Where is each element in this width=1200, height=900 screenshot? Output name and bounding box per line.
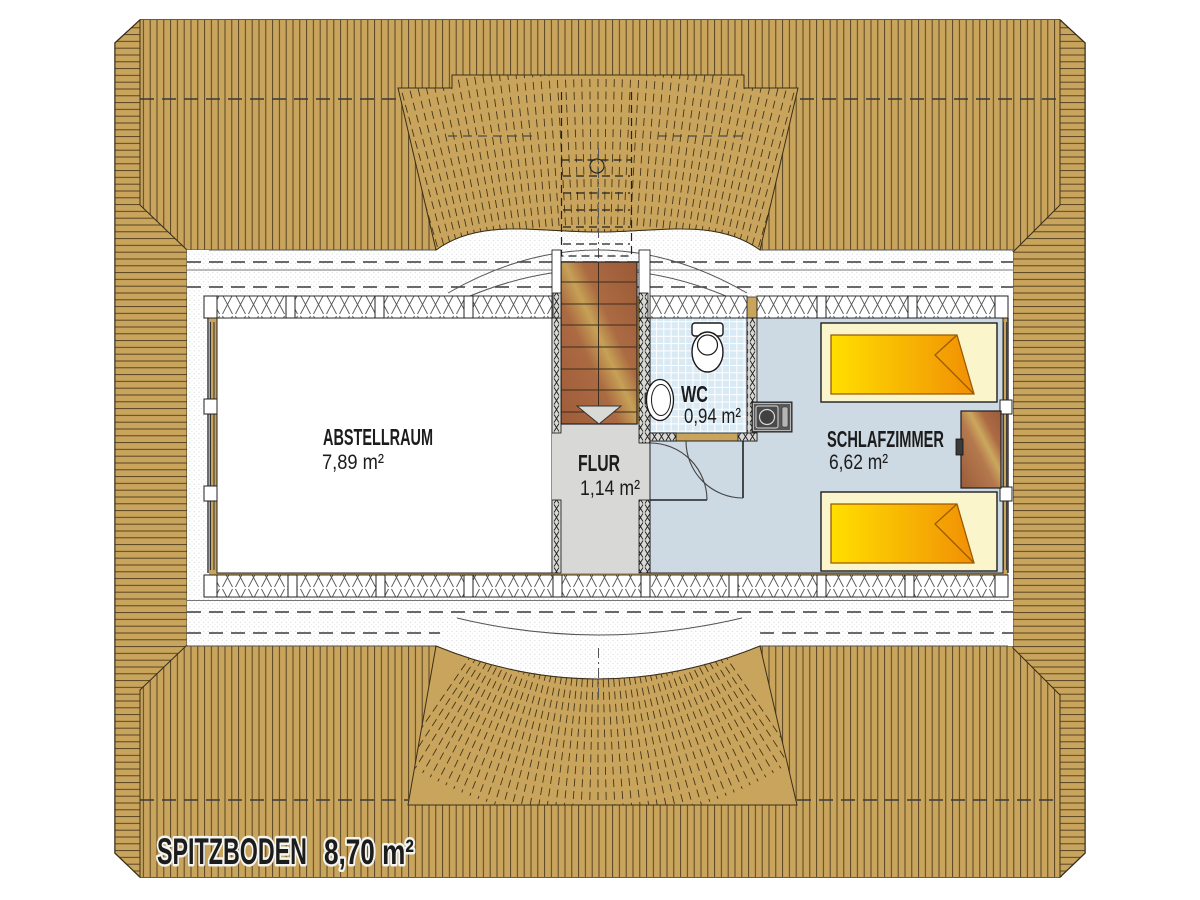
dresser [956, 411, 1001, 488]
abstellraum-label: ABSTELLRAUM [323, 424, 433, 450]
plan-title-area: 8,70 m² [324, 833, 414, 872]
flur-area: 1,14 m² [580, 476, 640, 500]
bed-top [821, 323, 997, 402]
flur-label: FLUR [578, 450, 620, 476]
schlafzimmer-area: 6,62 m² [829, 450, 888, 474]
floor-plan-drawing: ABSTELLRAUM 7,89 m² FLUR 1,14 m² WC 0,94… [0, 0, 1200, 900]
door-gap-floor [640, 443, 650, 500]
wc-area: 0,94 m² [684, 404, 741, 428]
toilet [692, 323, 723, 372]
eaves-strip-east [1008, 252, 1013, 646]
dresser-handle [956, 439, 963, 455]
staircase [561, 262, 637, 424]
floor-plan-page: ABSTELLRAUM 7,89 m² FLUR 1,14 m² WC 0,94… [0, 0, 1200, 900]
bed-bottom [821, 492, 997, 571]
plan-title-label: SPITZBODEN [157, 831, 307, 872]
schlafzimmer-label: SCHLAFZIMMER [827, 426, 944, 452]
washing-machine [752, 402, 792, 432]
abstellraum-area: 7,89 m² [322, 450, 384, 474]
plan-title: SPITZBODEN 8,70 m² [157, 831, 414, 872]
